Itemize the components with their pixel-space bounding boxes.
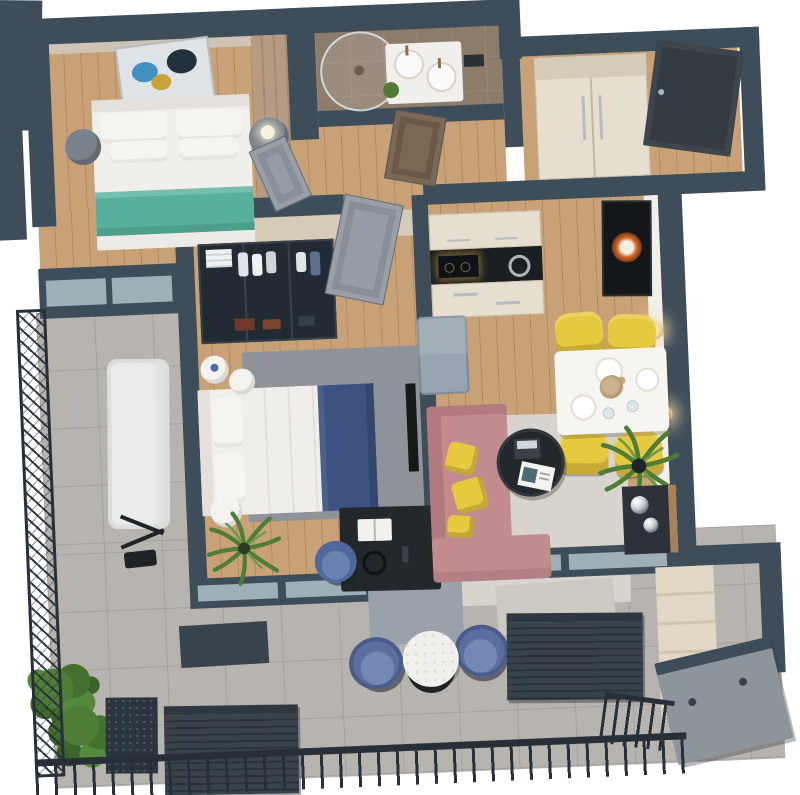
hatch-bolt <box>688 697 698 707</box>
bed2-navy-blanket <box>317 383 378 511</box>
louver-screen <box>507 612 644 700</box>
art-orange-swirl <box>612 232 642 262</box>
apartment-floor-plan <box>0 0 800 795</box>
hanging-shirt <box>266 251 277 273</box>
laptop-screen <box>517 440 537 449</box>
dinner-plate <box>570 394 597 421</box>
glass-pane <box>112 275 173 303</box>
chrome-sphere <box>630 496 649 515</box>
kitchen-counter <box>430 246 543 285</box>
bed2-pillow <box>212 397 244 448</box>
vanity-basin <box>393 49 424 80</box>
hatch-bolt <box>738 677 748 687</box>
vanity-basin <box>426 61 457 92</box>
wardrobe-divider <box>287 240 293 340</box>
wardrobe-handle <box>598 95 603 139</box>
cooktop-burner <box>444 263 454 273</box>
bed1-pillow <box>179 137 238 161</box>
magazine <box>517 461 555 491</box>
sofa-yellow-pillow <box>447 515 474 539</box>
kitchen-upper-cabinets <box>428 210 541 251</box>
flat-panel-dark <box>179 621 269 668</box>
wall-hall-entrance <box>502 57 524 148</box>
headphones <box>362 551 387 576</box>
entry-door-handle <box>658 89 665 96</box>
drawer-handle <box>496 301 520 305</box>
sideboard <box>622 485 679 555</box>
balcony-railing-corner <box>599 692 675 752</box>
dinner-plate <box>635 367 660 392</box>
drinking-glass <box>626 400 638 412</box>
vanity-tap <box>405 45 408 55</box>
kitchen-sink <box>508 254 531 277</box>
art-paint-blob <box>165 47 198 75</box>
hanging-shirt <box>252 254 263 276</box>
cabinet-handle <box>447 239 469 242</box>
drinking-glass <box>602 407 614 419</box>
bed1 <box>91 94 255 250</box>
storage-box <box>298 316 314 327</box>
bedroom2-wardrobe <box>197 239 337 345</box>
bathroom-vanity <box>385 41 463 104</box>
wardrobe-top-shadow <box>534 53 647 80</box>
hanging-shirt <box>296 252 307 272</box>
cooktop <box>438 255 479 279</box>
kitchen-drawer-cabinets <box>431 280 544 319</box>
towel-stack <box>206 249 233 268</box>
laptop <box>514 438 541 459</box>
render-canvas <box>0 0 800 795</box>
art-paint-blob <box>150 73 172 91</box>
bedroom1-balcony-glass-door <box>38 263 180 319</box>
open-book <box>357 519 392 542</box>
wardrobe-handle <box>581 96 586 140</box>
vanity-plant <box>383 82 400 99</box>
vanity-tap <box>438 58 441 68</box>
living-wall-art <box>604 202 651 294</box>
bedroom2-palm-plant <box>200 503 287 590</box>
hanging-shirt <box>238 252 249 276</box>
wardrobe-door-gap <box>590 78 596 178</box>
sun-lounger <box>107 359 170 529</box>
shower-drain <box>354 65 364 75</box>
storage-box <box>263 319 281 330</box>
cooktop-burner <box>460 262 470 272</box>
wall-entrance-right <box>739 27 765 178</box>
bedroom2-desk <box>339 505 441 591</box>
magazine-text-line <box>539 477 549 481</box>
hanging-jeans <box>310 251 321 275</box>
cabinet-handle <box>495 237 517 240</box>
chrome-sphere <box>643 517 659 533</box>
magazine-text-line <box>540 472 550 476</box>
drawer-handle <box>454 293 478 297</box>
bed2-duvet <box>241 385 322 514</box>
exterior-wall-left-face <box>0 112 27 242</box>
magazine-photo <box>521 467 538 484</box>
glass-pane <box>46 278 107 306</box>
bed1-teal-blanket <box>95 186 255 237</box>
entrance-wardrobe <box>534 53 651 180</box>
storage-box <box>234 318 254 331</box>
entry-door <box>643 40 744 157</box>
sofa-chaise <box>432 534 552 583</box>
book-spine <box>373 519 376 541</box>
towel-rail <box>464 54 484 67</box>
centerpiece-dried-flowers <box>599 375 624 400</box>
bed1-pillow <box>109 140 168 164</box>
refrigerator <box>417 315 470 395</box>
desk-item <box>402 546 408 562</box>
